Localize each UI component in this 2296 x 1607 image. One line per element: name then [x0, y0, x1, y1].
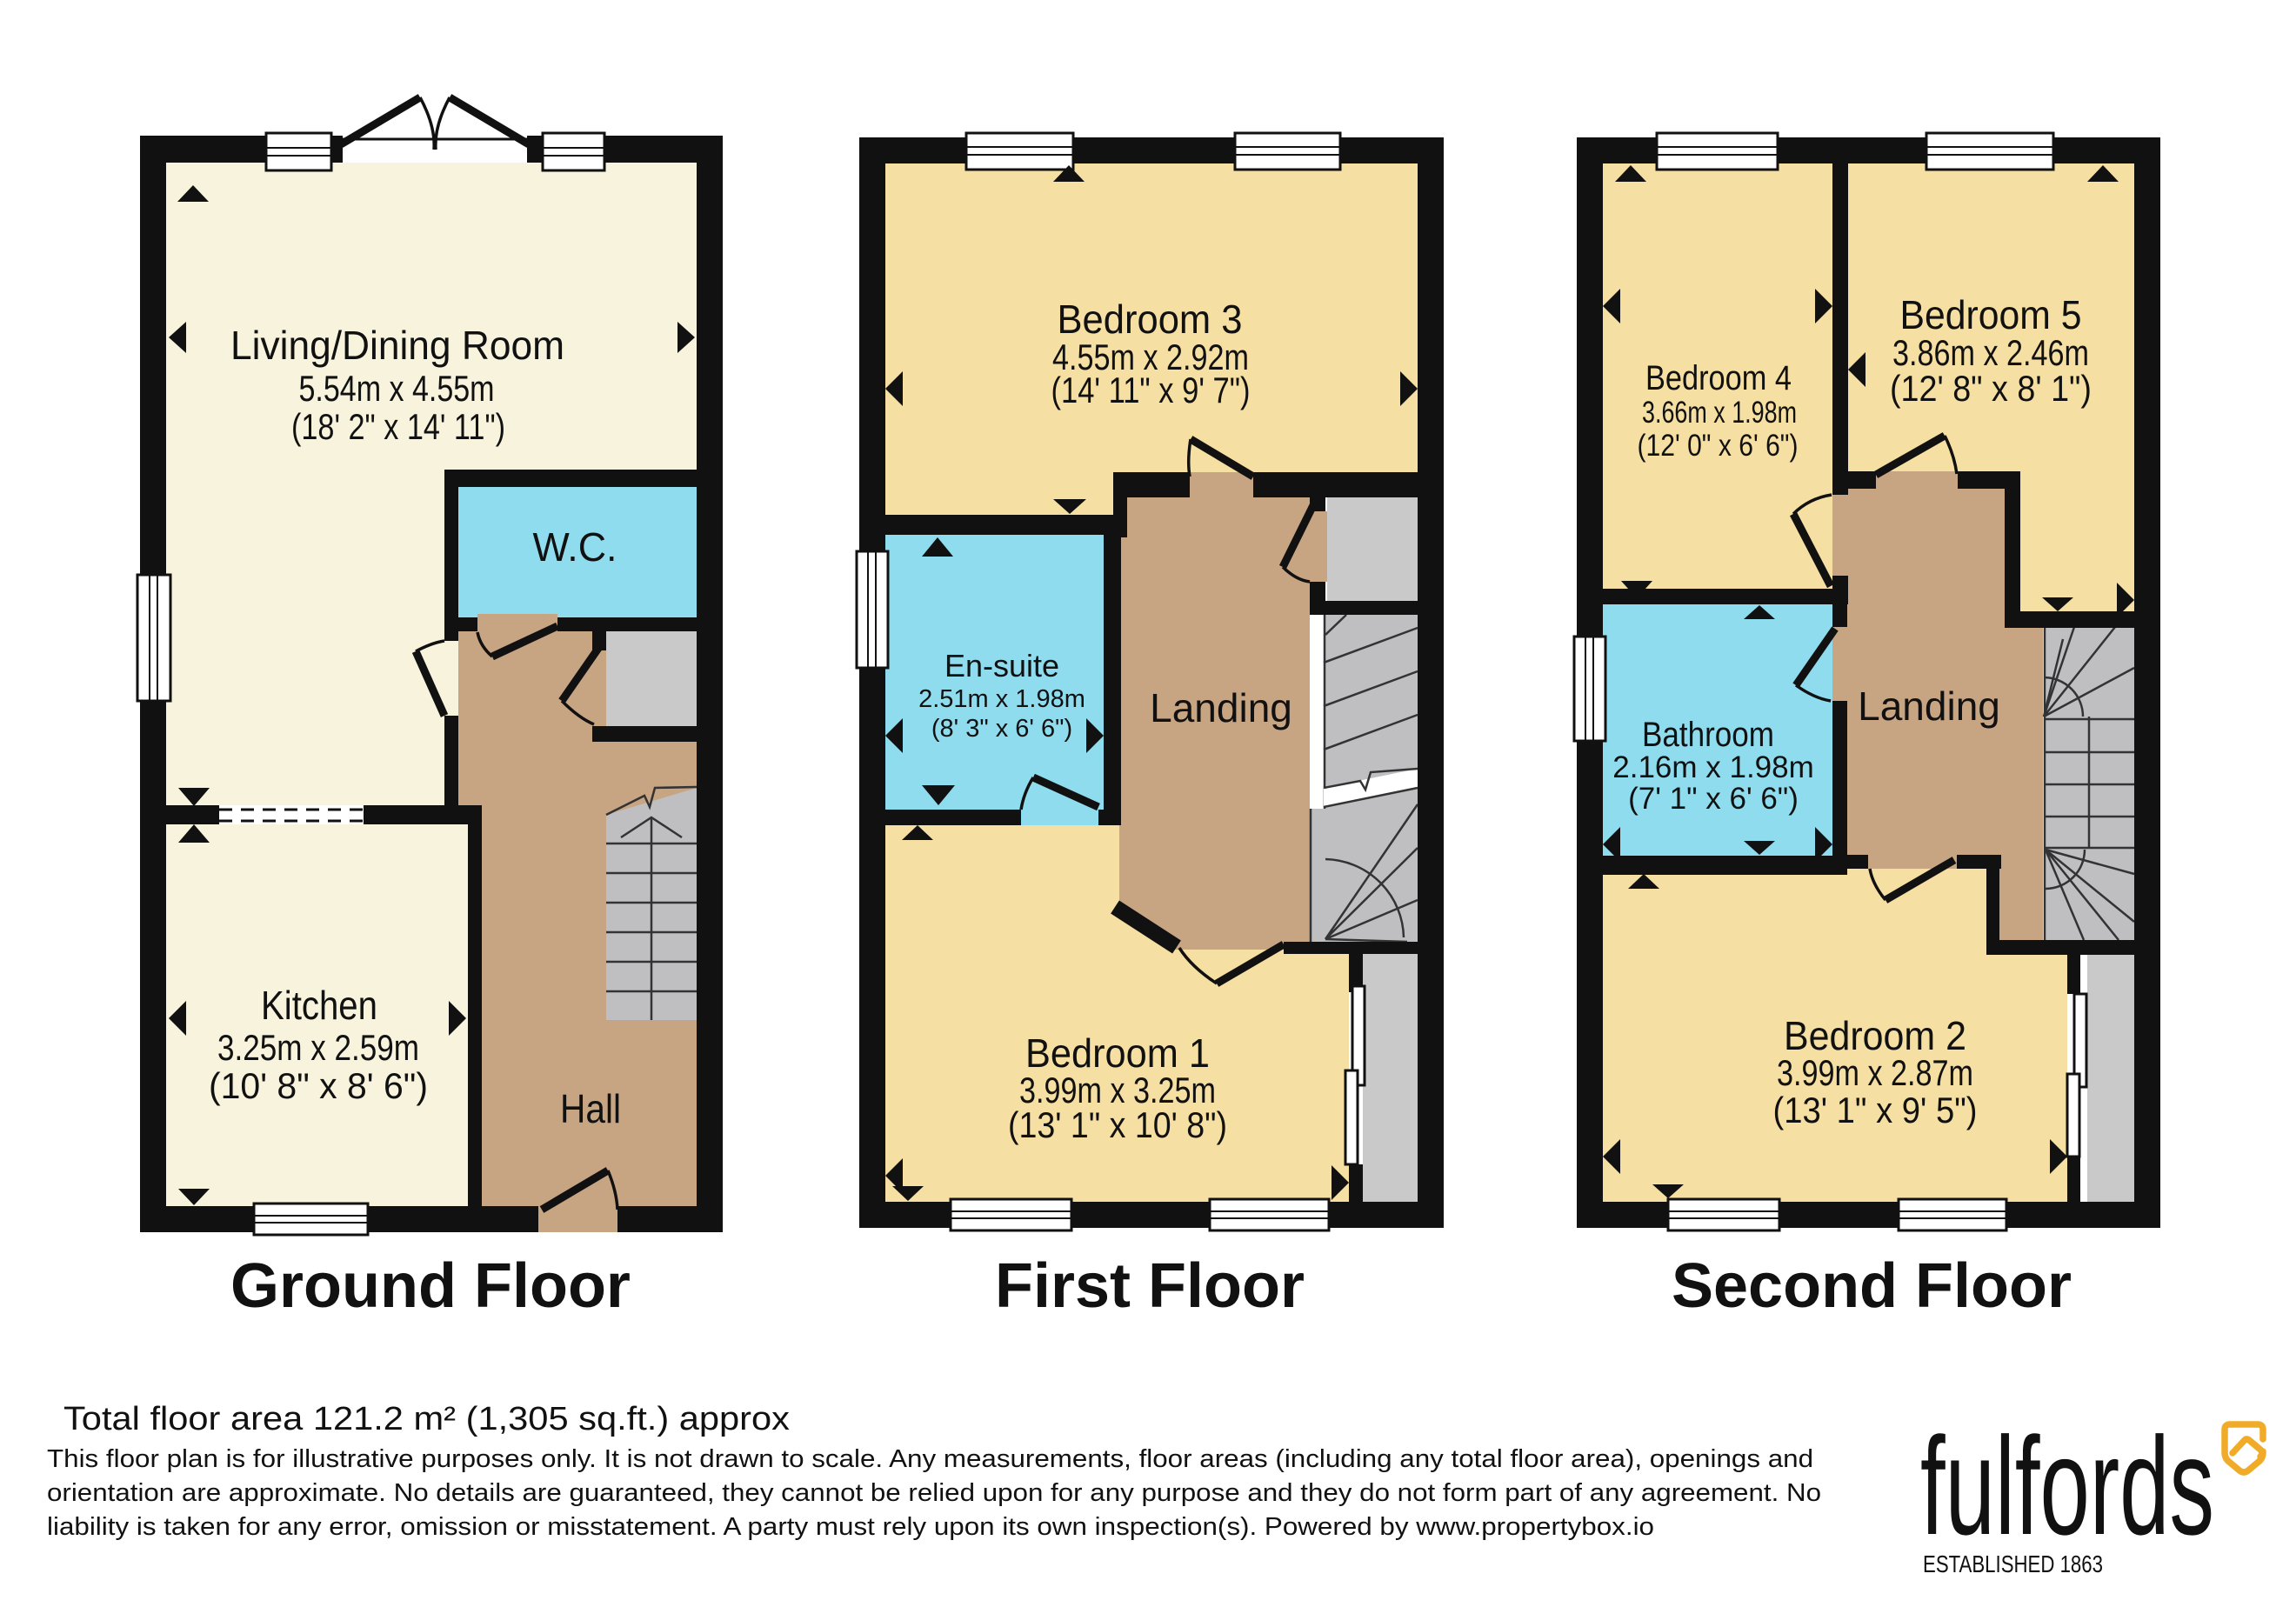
svg-text:This floor plan is for illustr: This floor plan is for illustrative purp… [47, 1445, 1813, 1473]
svg-text:Bathroom: Bathroom [1642, 716, 1774, 754]
svg-text:First Floor: First Floor [995, 1251, 1305, 1321]
svg-text:(10' 8" x 8' 6"): (10' 8" x 8' 6") [209, 1065, 428, 1106]
svg-text:(13' 1" x 10' 8"): (13' 1" x 10' 8") [1008, 1104, 1227, 1145]
svg-text:5.54m x 4.55m: 5.54m x 4.55m [299, 368, 495, 409]
svg-text:W.C.: W.C. [533, 524, 617, 570]
svg-text:Landing: Landing [1150, 685, 1292, 730]
svg-text:(13' 1" x 9' 5"): (13' 1" x 9' 5") [1773, 1090, 1978, 1130]
svg-text:2.51m x 1.98m: 2.51m x 1.98m [918, 685, 1085, 713]
svg-text:Bedroom 3: Bedroom 3 [1058, 297, 1243, 342]
svg-text:ESTABLISHED 1863: ESTABLISHED 1863 [1923, 1550, 2103, 1577]
svg-text:(12' 0" x 6' 6"): (12' 0" x 6' 6") [1638, 429, 1799, 463]
svg-text:Living/Dining Room: Living/Dining Room [230, 323, 564, 368]
svg-text:Bedroom 5: Bedroom 5 [1900, 292, 2082, 337]
svg-text:Kitchen: Kitchen [261, 983, 377, 1028]
svg-text:Second Floor: Second Floor [1672, 1251, 2072, 1321]
svg-text:3.66m x 1.98m: 3.66m x 1.98m [1642, 396, 1797, 430]
svg-text:(8' 3" x 6' 6"): (8' 3" x 6' 6") [931, 715, 1072, 743]
svg-text:3.25m x 2.59m: 3.25m x 2.59m [217, 1027, 419, 1068]
svg-text:3.86m x 2.46m: 3.86m x 2.46m [1892, 332, 2089, 373]
svg-text:(18' 2" x 14' 11"): (18' 2" x 14' 11") [291, 406, 505, 447]
svg-text:Total floor area 121.2 m² (1,3: Total floor area 121.2 m² (1,305 sq.ft.)… [63, 1401, 790, 1437]
svg-text:(14' 11" x 9' 7"): (14' 11" x 9' 7") [1051, 370, 1251, 410]
svg-text:Hall: Hall [560, 1086, 621, 1131]
svg-text:fulfords: fulfords [1920, 1408, 2214, 1564]
svg-text:liability is taken for any err: liability is taken for any error, omissi… [47, 1513, 1654, 1541]
svg-text:3.99m x 2.87m: 3.99m x 2.87m [1777, 1052, 1973, 1093]
svg-text:Bedroom 4: Bedroom 4 [1645, 359, 1792, 397]
svg-text:Ground Floor: Ground Floor [230, 1251, 631, 1321]
svg-text:En-suite: En-suite [944, 648, 1059, 683]
svg-text:Landing: Landing [1858, 683, 2000, 729]
svg-text:(7' 1" x 6' 6"): (7' 1" x 6' 6") [1628, 782, 1799, 816]
svg-text:(12' 8" x 8' 1"): (12' 8" x 8' 1") [1890, 368, 2092, 409]
svg-text:orientation are approximate. N: orientation are approximate. No details … [47, 1479, 1821, 1507]
svg-text:2.16m x 1.98m: 2.16m x 1.98m [1612, 750, 1814, 784]
